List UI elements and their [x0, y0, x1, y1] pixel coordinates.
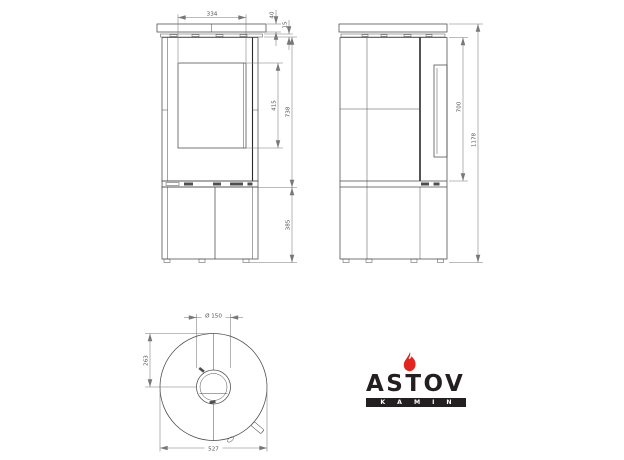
dim-top-plate-thickness: 40: [270, 11, 276, 19]
top-latch-detail: [227, 436, 235, 443]
side-foot: [343, 259, 349, 263]
dim-collar-height: 15: [283, 21, 289, 29]
side-view: [339, 24, 447, 263]
side-door-handle: [434, 65, 447, 157]
front-foot: [199, 259, 205, 263]
front-foot: [164, 259, 170, 263]
top-flue-pipe: [200, 374, 227, 401]
front-foot: [243, 259, 249, 263]
dim-overall-height: 1178: [472, 132, 478, 147]
top-view: [160, 334, 267, 444]
brand-logo: ASTOV KAMIN: [366, 350, 466, 407]
dim-base-height: 385: [286, 219, 292, 230]
side-view-dimensions: 700 1178: [449, 24, 483, 263]
stove-dimension-drawing: 334 40 15 415 738 385: [0, 0, 624, 460]
top-air-stub: [251, 422, 264, 434]
dim-door-glass-width: 334: [207, 12, 218, 18]
front-door-glass: [178, 63, 246, 148]
side-foot: [438, 259, 444, 263]
top-view-dimensions: Ø 150 263 527: [144, 313, 268, 453]
front-base-body: [162, 187, 258, 259]
front-view: [157, 24, 266, 263]
brand-tagline-bar: KAMIN: [366, 398, 466, 407]
brand-name: ASTOV: [366, 373, 465, 396]
dim-overall-diameter: 527: [208, 446, 219, 452]
top-flue-collar: [197, 370, 231, 404]
technical-drawing-canvas: 334 40 15 415 738 385: [0, 0, 624, 460]
dim-flue-center-offset: 263: [144, 355, 150, 366]
front-view-dimensions: 334 40 15 415 738 385: [178, 10, 297, 263]
flame-icon: [403, 352, 417, 372]
front-middle-band: [162, 181, 258, 187]
side-foot: [411, 259, 417, 263]
side-foot: [366, 259, 372, 263]
side-top-plate: [339, 24, 447, 32]
dim-upper-body-height: 738: [286, 106, 292, 117]
side-body: [340, 38, 447, 260]
dim-flue-diameter: Ø 150: [205, 313, 222, 320]
dim-glass-height: 415: [272, 100, 278, 111]
dim-upper-section-height: 700: [457, 101, 463, 112]
